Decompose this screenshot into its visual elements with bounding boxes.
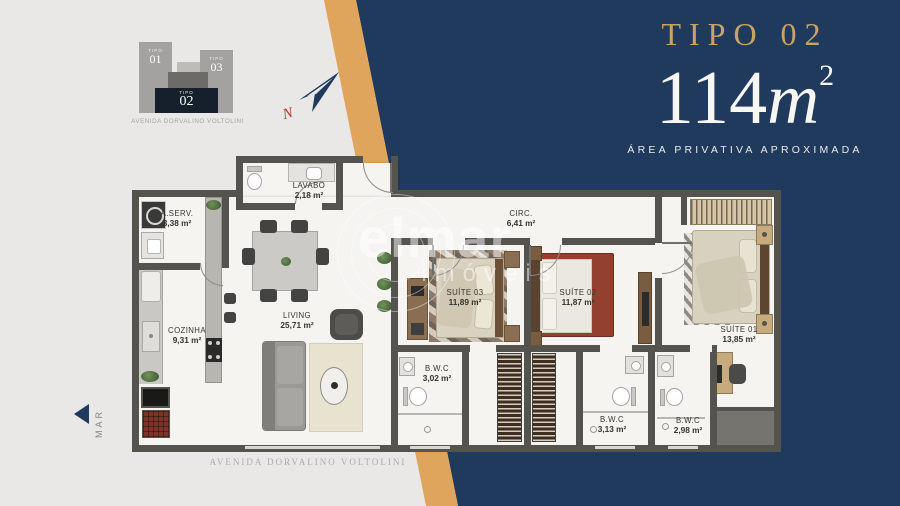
room-area: 25,71 m² [280,321,313,330]
room-label-circ: CIRC. 6,41 m² [507,210,536,228]
toilet [631,387,636,406]
cooktop [206,338,222,362]
burner [208,341,212,345]
sofa-cushion [277,346,303,384]
room-area: 6,41 m² [507,219,536,228]
sofa-cushion [277,388,303,426]
unit-area-value: 114 [656,56,767,140]
vanity-counter [288,163,335,182]
headboard [495,259,503,337]
sofa [262,341,306,431]
closet-suite02 [532,353,556,442]
room-label-suite03: SUÍTE 03 11,89 m² [447,289,484,307]
wall [236,156,363,163]
basin [661,362,671,372]
window [595,446,635,449]
room-area: 2,98 m² [674,426,703,435]
plant [141,371,159,382]
sea-arrow-icon [74,404,89,424]
wall [132,190,139,452]
wall [132,263,200,270]
wall [496,345,600,352]
window [245,446,380,449]
room-area: 11,87 m² [560,298,597,307]
desk-chair [729,364,746,384]
wall [222,190,229,268]
shower-divider [583,411,648,413]
plant [206,200,221,210]
bar-stool [224,293,236,304]
wall [710,352,717,445]
printer [411,323,424,335]
wall [465,238,530,245]
shower-drain [424,426,431,433]
closet-suite03 [497,353,522,442]
suite02-door-leaf [529,245,531,275]
tank-basin [147,239,161,254]
desk [407,278,428,340]
dining-table [252,231,318,291]
toilet [403,387,408,406]
wall [576,352,583,445]
title-block: TIPO 02 114m2 ÁREA PRIVATIVA APROXIMADA [595,16,895,156]
bathroom-sink [625,356,644,374]
bathroom-sink [399,357,415,376]
dining-chair [316,248,329,265]
wall [398,238,433,245]
key-plan-block-number: 02 [155,95,218,109]
toilet [660,389,665,406]
terrace-slab [712,407,774,445]
plant [377,300,392,312]
basin [403,362,413,372]
key-plan: TIPO 01 TIPO 03 TIPO 02 AVENIDA DORVALIN… [130,30,245,130]
wall [391,238,398,445]
dining-chair [242,248,255,265]
room-area: 2,18 m² [293,191,325,200]
suite01-door-leaf [662,242,692,244]
north-label: N [281,105,295,124]
nightstand [504,251,520,268]
dresser-tv [638,272,652,344]
bar-stool [224,312,236,323]
room-label-cozinha: COZINHA 9,31 m² [168,327,206,345]
sea-label: MAR [94,392,104,438]
toilet [247,166,262,172]
room-area: 9,31 m² [168,336,206,345]
unit-type-title: TIPO 02 [595,16,895,53]
table-decor [331,382,338,389]
table-centerpiece [281,257,291,266]
entry-door-leaf [390,163,392,192]
laundry-tank [141,232,164,259]
shower-divider [398,413,462,415]
fridge [141,271,161,302]
lamp [762,232,767,237]
burner [208,355,212,359]
nightstand [756,225,773,245]
room-area: 3,13 m² [598,425,627,434]
faucet [149,334,153,338]
wall [774,190,781,452]
nightstand [504,325,520,342]
suite03-door-leaf [432,245,434,275]
key-plan-street-label: AVENIDA DORVALINO VOLTOLINI [130,118,245,125]
wall [655,278,662,352]
north-compass: N [283,68,347,128]
wall [398,345,470,352]
room-area: 3,02 m² [423,374,452,383]
wash-basin [306,167,322,180]
wall [336,156,343,210]
room-label-suite02: SUÍTE 02 11,87 m² [560,289,597,307]
wall [632,345,655,352]
wall [398,190,781,197]
room-label-bwc302: B.W.C 3,02 m² [423,365,452,383]
shower-drain [590,426,597,433]
toilet-bowl [612,387,630,406]
wall [562,238,655,245]
plant [377,278,392,290]
bathroom-sink [657,355,674,377]
unit-area-exponent: 2 [819,59,834,92]
burner [216,341,220,345]
unit-area: 114m2 [595,59,895,136]
room-area: 3,38 m² [161,219,194,228]
pillow [542,298,557,330]
toilet-bowl [247,173,262,190]
wall [655,197,662,243]
throw-blanket [694,254,754,315]
armchair [330,309,363,340]
room-label-bwc313: B.W.C 3,13 m² [598,416,627,434]
lamp [762,321,767,326]
window [668,446,698,449]
room-label-living: LIVING 25,71 m² [280,312,313,330]
unit-area-unit: m [767,59,819,139]
dining-chair [260,220,277,233]
barbecue-grill [142,410,170,438]
tv [642,292,649,326]
burner [216,355,220,359]
unit-area-caption: ÁREA PRIVATIVA APROXIMADA [595,144,895,156]
wardrobe [690,199,772,225]
dining-chair [291,289,308,302]
wall [712,345,717,352]
tv-cabinet [141,387,170,408]
kitchen-sink [142,321,160,352]
wall [655,345,690,352]
coffee-table [320,367,348,405]
room-label-lavabo: LAVABO 2,18 m² [293,182,325,200]
room-label-aserv: A.SERV. 3,38 m² [161,210,194,228]
wall [322,203,343,210]
toilet-bowl [409,387,427,406]
street-label: AVENIDA DORVALINO VOLTOLINI [158,457,458,467]
sofa-backrest [263,342,275,430]
sea-direction: MAR [70,390,115,445]
monitor [411,286,424,296]
shower-drain [662,423,669,430]
dining-chair [291,220,308,233]
wall [681,197,687,225]
armchair-seat [335,314,358,335]
key-plan-block-notch [177,62,200,72]
wall [236,203,295,210]
nightstand [756,314,773,334]
room-area: 11,89 m² [447,298,484,307]
room-area: 13,85 m² [721,335,758,344]
wall [462,352,469,445]
wall [648,352,655,445]
floor-plan-page: TIPO 02 114m2 ÁREA PRIVATIVA APROXIMADA … [0,0,900,506]
north-arrow-icon [295,68,345,118]
dining-chair [260,289,277,302]
toilet-bowl [666,388,683,406]
window [410,446,450,449]
key-plan-block-tipo02: TIPO 02 [155,88,218,113]
basin [631,361,641,371]
room-label-bwc298: B.W.C 2,98 m² [674,417,703,435]
room-label-suite01: SUÍTE 01 13,85 m² [721,326,758,344]
key-plan-block-number: 01 [139,53,172,65]
plant [377,252,392,264]
